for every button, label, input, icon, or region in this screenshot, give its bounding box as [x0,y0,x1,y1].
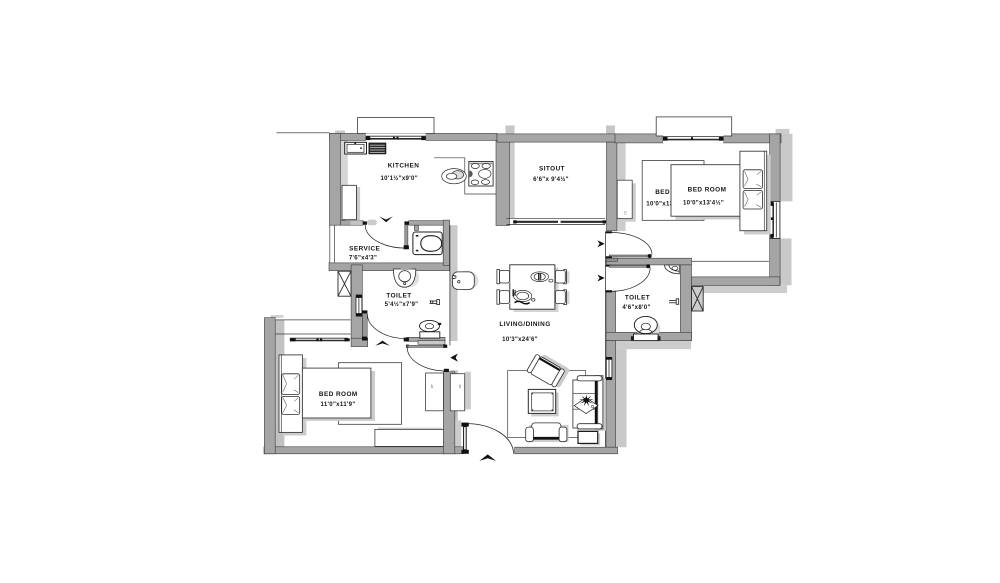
svg-text:SITOUT: SITOUT [539,166,565,173]
svg-text:1'6": 1'6" [458,384,462,388]
svg-text:1'6": 1'6" [430,384,434,388]
svg-text:LIVING/DINING: LIVING/DINING [499,321,550,328]
svg-text:4'6"x8'0": 4'6"x8'0" [622,304,650,311]
svg-text:10'0"x13'4½": 10'0"x13'4½" [683,200,724,207]
svg-text:11'0"x11'9": 11'0"x11'9" [320,401,355,408]
svg-text:5'4½"x7'9": 5'4½"x7'9" [385,301,419,308]
svg-text:TOILET: TOILET [625,295,650,302]
svg-text:7'6"x4'3": 7'6"x4'3" [349,255,377,262]
svg-text:7'0": 7'0" [624,211,628,215]
svg-text:6'6"x 9'4½": 6'6"x 9'4½" [533,176,569,183]
svg-text:BED ROOM: BED ROOM [688,187,727,194]
svg-text:TOILET: TOILET [386,292,411,299]
svg-text:KITCHEN: KITCHEN [388,162,420,169]
svg-text:10'1½"x9'0": 10'1½"x9'0" [380,175,417,182]
svg-text:SERVICE: SERVICE [349,245,380,252]
svg-text:10'3"x24'6": 10'3"x24'6" [502,336,538,343]
svg-text:BED ROOM: BED ROOM [319,391,358,398]
